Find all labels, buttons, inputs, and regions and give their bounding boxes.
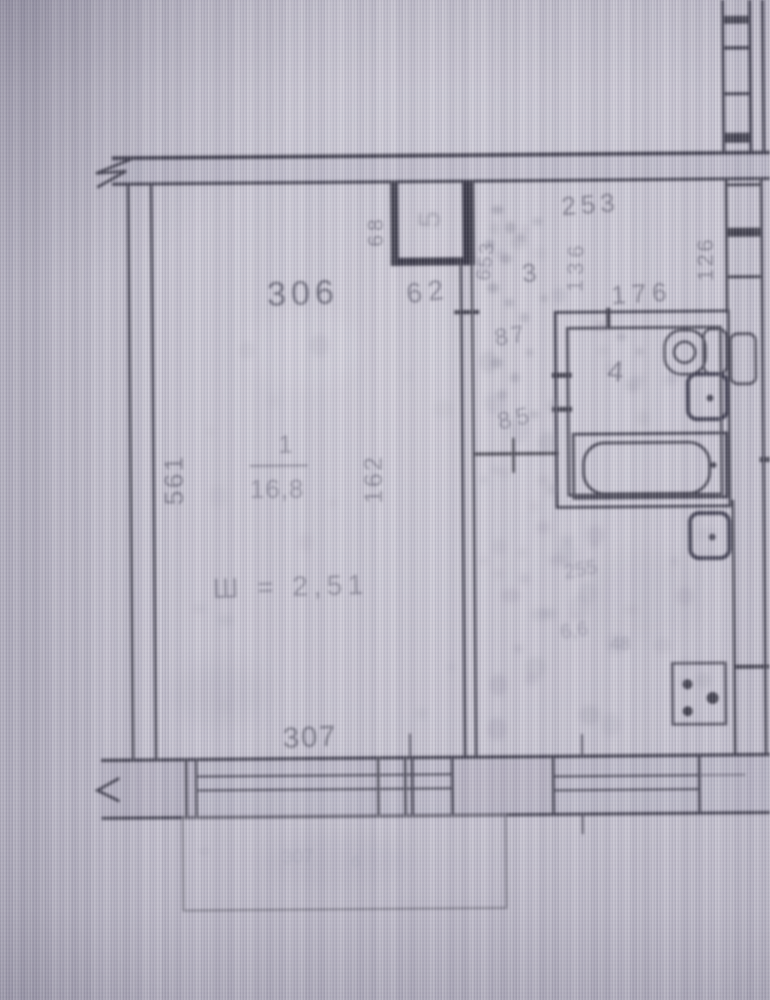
svg-text:126: 126 (693, 237, 718, 281)
svg-text:16,8: 16,8 (250, 474, 305, 504)
svg-text:68: 68 (364, 215, 387, 247)
svg-text:307: 307 (282, 721, 338, 755)
svg-text:3: 3 (521, 257, 538, 288)
svg-text:253: 253 (560, 187, 621, 221)
svg-text:87: 87 (493, 320, 529, 352)
svg-text:162: 162 (359, 454, 387, 503)
svg-text:561: 561 (158, 454, 188, 505)
svg-text:б: б (196, 847, 212, 855)
svg-text:Ш = 2,51: Ш = 2,51 (212, 569, 369, 604)
svg-text:62: 62 (405, 273, 451, 309)
svg-text:176: 176 (610, 276, 673, 310)
svg-text:306: 306 (266, 273, 339, 313)
svg-text:6,6: 6,6 (559, 618, 590, 644)
svg-text:1: 1 (278, 431, 292, 459)
svg-text:5: 5 (413, 210, 447, 228)
svg-text:136: 136 (562, 240, 588, 292)
